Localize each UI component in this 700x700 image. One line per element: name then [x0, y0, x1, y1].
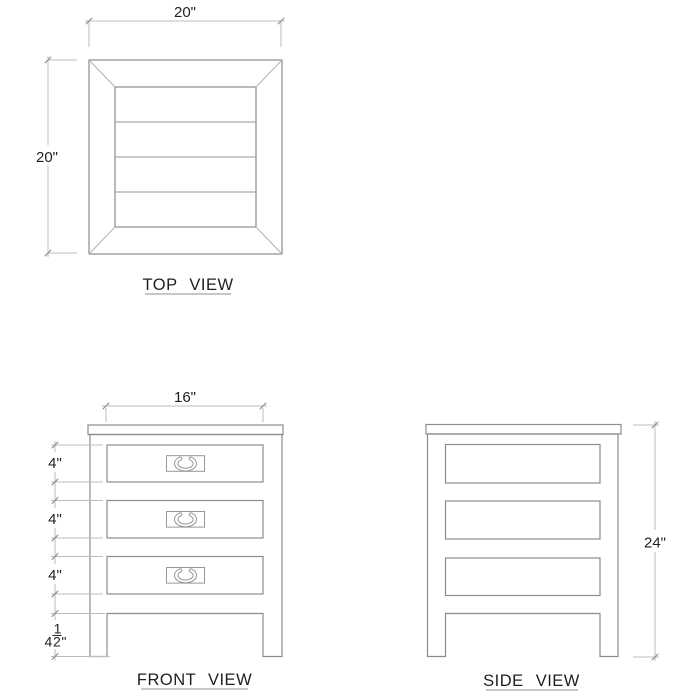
miter-joint-bottom-left: [89, 227, 115, 254]
drawer-2-front: [107, 501, 263, 539]
leg-dim-whole: 4: [45, 634, 53, 650]
side-view-label: SIDE VIEW: [483, 672, 580, 690]
side-panel-3: [446, 558, 601, 596]
top-width-dim-text: 20": [174, 4, 196, 21]
handle-plate: [167, 568, 205, 584]
drawer-1-height-dim-text: 4": [48, 455, 62, 472]
front-width-dim-text: 16": [174, 389, 196, 406]
miter-joint-top-right: [256, 60, 282, 87]
top-view: 20" 20" TOP VIEW: [32, 4, 285, 294]
front-view: 16": [40, 389, 283, 689]
side-body-outline: [428, 434, 619, 657]
drawer-3-handle: [167, 568, 205, 584]
miter-joint-top-left: [89, 60, 115, 87]
drawer-2-height-dim-text: 4": [48, 511, 62, 528]
technical-drawing-sheet: 20" 20" TOP VIEW 16": [0, 0, 700, 700]
drawer-1-handle: [167, 456, 205, 472]
handle-plate: [167, 512, 205, 528]
drawer-1-front: [107, 445, 263, 482]
handle-ring: [175, 457, 197, 471]
miter-joint-bottom-right: [256, 227, 282, 254]
side-panel-2: [446, 501, 601, 539]
side-top-slab: [426, 425, 621, 435]
drawer-3-height-dim-text: 4": [48, 567, 62, 584]
leg-height-dim-text: 1 4 2 ": [40, 620, 72, 650]
leg-dim-denominator: 2: [53, 634, 61, 650]
side-view: 24" SIDE VIEW: [426, 421, 671, 690]
drawer-2-handle: [167, 512, 205, 528]
handle-plate: [167, 456, 205, 472]
front-view-label: FRONT VIEW: [137, 671, 252, 689]
top-view-label: TOP VIEW: [142, 276, 233, 294]
top-depth-dim-text: 20": [36, 149, 58, 166]
side-height-dim-text: 24": [644, 535, 666, 552]
front-top-slab: [88, 425, 283, 435]
handle-ring: [175, 569, 197, 583]
furniture-drawing-canvas: 20" 20" TOP VIEW 16": [0, 0, 700, 700]
drawer-3-front: [107, 557, 263, 595]
leg-dim-unit: ": [62, 634, 67, 650]
handle-ring: [175, 513, 197, 527]
side-panel-1: [446, 445, 601, 484]
